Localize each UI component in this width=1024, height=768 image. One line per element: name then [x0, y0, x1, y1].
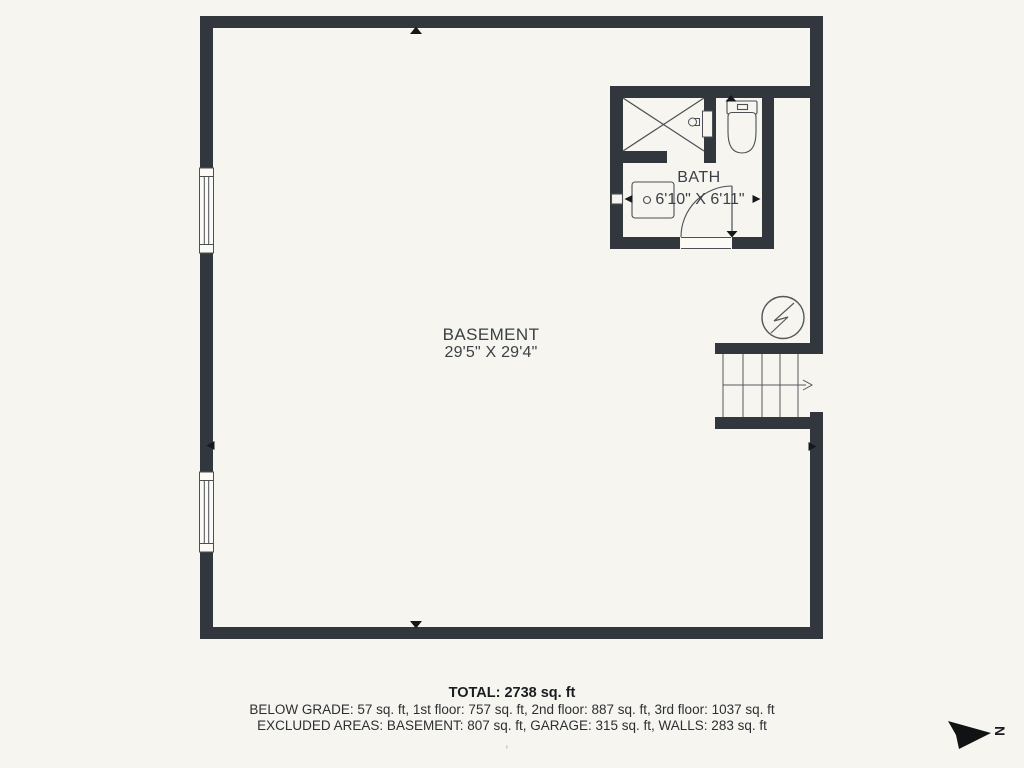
floor-plan-drawing — [0, 0, 1024, 768]
bottom-wall — [200, 627, 823, 639]
bath-top-wall — [610, 86, 810, 98]
window-2-icon — [200, 472, 214, 552]
bath-room-dimensions: 6'10" X 6'11" — [630, 191, 770, 209]
stray-comma-mark: , — [505, 735, 509, 750]
summary-excluded: EXCLUDED AREAS: BASEMENT: 807 sq. ft, GA… — [0, 718, 1024, 733]
summary-floors: BELOW GRADE: 57 sq. ft, 1st floor: 757 s… — [0, 702, 1024, 717]
bath-bottom-wall-left — [610, 237, 680, 249]
top-wall — [200, 16, 823, 28]
stair-top-wall — [715, 343, 810, 354]
stair-bottom-wall — [715, 417, 810, 429]
floor-plan-page: BASEMENT 29'5" X 29'4" BATH 6'10" X 6'11… — [0, 0, 1024, 768]
stairs-icon — [723, 354, 812, 417]
toilet-icon — [727, 101, 757, 153]
bath-walls — [610, 86, 810, 249]
basement-room-label: BASEMENT — [391, 325, 591, 345]
shower-valve-icon — [689, 111, 713, 137]
shower-bottom-wall — [623, 151, 667, 163]
summary-total: TOTAL: 2738 sq. ft — [0, 685, 1024, 701]
bath-left-wall — [610, 86, 623, 249]
bath-right-wall — [762, 98, 774, 249]
right-wall-upper — [810, 16, 823, 354]
bath-room-label: BATH — [659, 169, 739, 187]
basement-room-dimensions: 29'5" X 29'4" — [391, 344, 591, 362]
window-1-icon — [200, 168, 214, 253]
utility-symbol-icon — [762, 297, 804, 339]
